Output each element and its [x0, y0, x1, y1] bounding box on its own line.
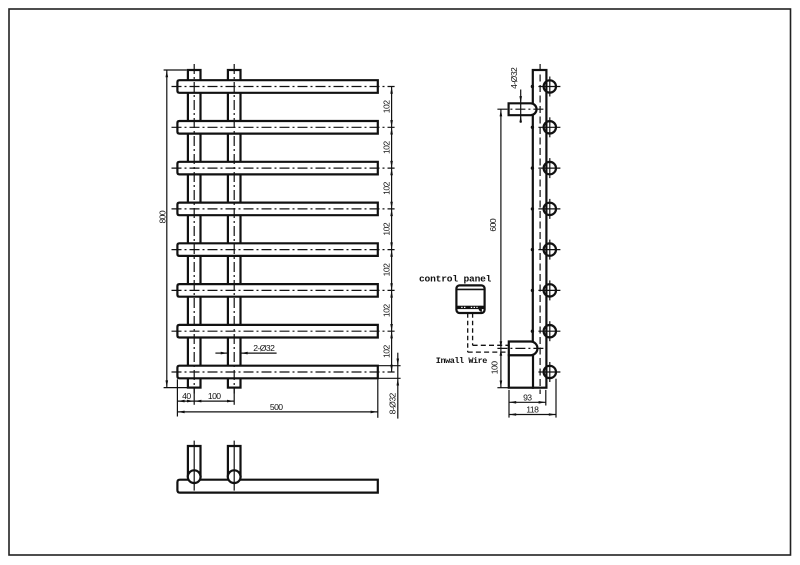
svg-text:102: 102 [381, 181, 391, 194]
svg-text:118: 118 [526, 405, 539, 415]
svg-text:500: 500 [270, 402, 283, 412]
svg-text:Inwall Wire: Inwall Wire [436, 356, 488, 366]
svg-text:600: 600 [488, 218, 498, 231]
svg-text:control panel: control panel [419, 274, 492, 285]
svg-text:102: 102 [381, 222, 391, 235]
svg-text:8-Ø32: 8-Ø32 [387, 392, 397, 414]
svg-text:4-Ø32: 4-Ø32 [509, 67, 519, 89]
svg-text:100: 100 [208, 391, 221, 401]
svg-text:102: 102 [381, 304, 391, 317]
svg-text:102: 102 [381, 141, 391, 154]
svg-text:2-Ø32: 2-Ø32 [253, 343, 275, 353]
svg-text:102: 102 [381, 263, 391, 276]
svg-text:102: 102 [381, 344, 391, 357]
svg-text:102: 102 [381, 100, 391, 113]
svg-text:100: 100 [489, 361, 499, 374]
svg-text:93: 93 [523, 392, 532, 402]
svg-text:40: 40 [182, 391, 191, 401]
svg-text:800: 800 [158, 210, 168, 223]
